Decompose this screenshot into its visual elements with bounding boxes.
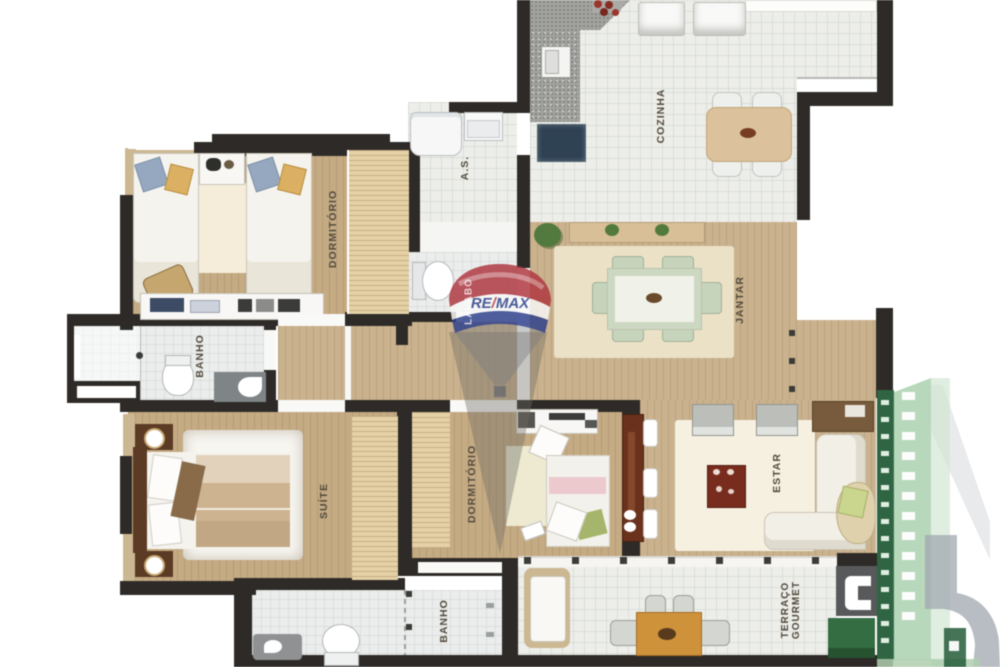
- svg-text:RE/MAX: RE/MAX: [471, 295, 530, 312]
